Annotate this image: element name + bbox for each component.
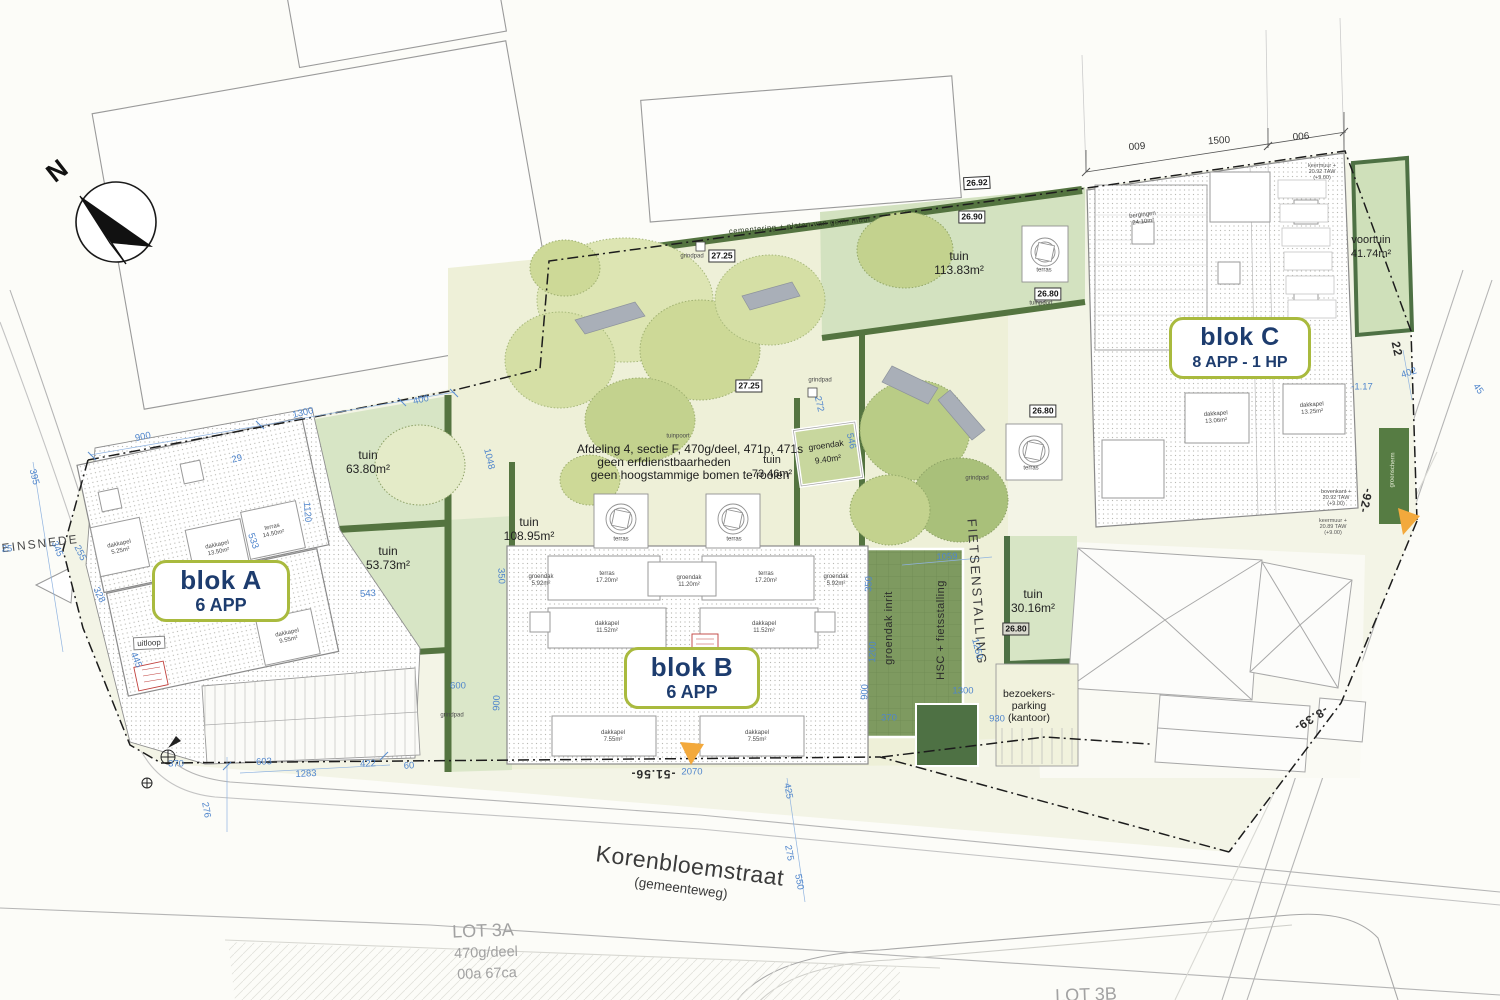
grindpad-label-3: grindpad: [965, 476, 988, 483]
dim-370-a: 370: [881, 713, 897, 724]
blok-c-subtitle: 8 APP - 1 HP: [1172, 352, 1308, 373]
blok-a-subtitle: 6 APP: [155, 595, 287, 616]
dim-543: 543: [360, 588, 377, 600]
lot-3b-title: LOT 3B: [1055, 983, 1117, 1000]
dim-29: 29: [230, 452, 243, 465]
terras-label-3: terras: [613, 537, 628, 544]
blokc-bergingen: bergingen24.10m²: [1129, 211, 1157, 228]
groenscherm-label: groenscherm: [1389, 452, 1396, 487]
dim-402: 402: [1400, 365, 1418, 380]
dim-900-c: 900: [859, 684, 871, 700]
blok-b-subtitle: 6 APP: [627, 682, 757, 703]
dim-1500: 1500: [1208, 135, 1231, 148]
chainage-92: -92-: [1357, 487, 1376, 515]
dim-425: 425: [781, 782, 795, 800]
site-plan-drawing: NKorenbloemstraat(gemeenteweg)TERREINSNE…: [0, 0, 1500, 1000]
taw-note-1: keermuur +20.92 TAW(+9.00): [1308, 163, 1336, 181]
uitloop-label: uitloop: [133, 636, 165, 651]
dim-550: 550: [792, 873, 806, 891]
blok-c-card: blok C 8 APP - 1 HP: [1169, 317, 1311, 379]
taw-note-3: keermuur +20.89 TAW(+9.00): [1319, 518, 1347, 536]
level-27-25-b: 27.25: [735, 380, 762, 393]
dim-422: 422: [360, 758, 376, 770]
dim-603: 603: [256, 756, 272, 768]
dim-1-17: -1.17: [1351, 382, 1373, 393]
grindpad-label-4: grindpad: [440, 713, 463, 720]
dim-350-b: 350: [863, 576, 875, 592]
blokb-groendak-1: groendak5.92m²: [528, 574, 553, 588]
blokb-groendak-3: groendak5.92m²: [823, 574, 848, 588]
dim-395: 395: [27, 468, 42, 486]
level-27-25-a: 27.25: [708, 250, 735, 263]
dim-255: 255: [72, 543, 89, 562]
bloka-terras: terras14.50m²: [261, 522, 285, 540]
blokb-dakkapel-2: dakkapel11.52m²: [752, 621, 776, 635]
dim-533: 533: [245, 532, 261, 551]
garden-label-voortuin: voortuin41.74m²: [1351, 233, 1391, 261]
level-26-80-b: 26.80: [1029, 405, 1056, 418]
hsc-fietsstalling-label: HSC + fietsstalling: [935, 580, 947, 680]
annotation-layer: NKorenbloemstraat(gemeenteweg)TERREINSNE…: [0, 0, 1500, 1000]
terras-label-1: terras: [1036, 268, 1051, 275]
grindpad-label-2: grindpad: [808, 378, 831, 385]
tuinpoort-label-2: tuinpoort: [666, 434, 689, 441]
dim-2070: 2070: [681, 767, 702, 778]
blokb-terras-2: terras17.20m²: [755, 571, 777, 585]
dim-60: 60: [403, 760, 414, 772]
dim-1300-b: 1300: [952, 686, 973, 697]
dim-009: 009: [1128, 141, 1145, 153]
dim-25: 25: [2, 544, 13, 555]
dim-272: 272: [812, 395, 826, 413]
taw-note-2: bovenkant +20.92 TAW(+9.00): [1321, 489, 1351, 507]
dim-600: 600: [450, 681, 466, 692]
lot-3a-line3: 00a 67ca: [457, 965, 517, 983]
dim-546: 546: [844, 432, 858, 450]
dim-1300-top: 1300: [291, 405, 314, 420]
garden-label-tuin-30: tuin30.16m²: [1011, 587, 1055, 615]
dim-006: 006: [1292, 131, 1309, 143]
dim-900-top: 900: [134, 430, 152, 444]
garden-label-tuin-113: tuin113.83m²: [934, 249, 984, 277]
site-note-line2: geen erfdienstbaarheden: [597, 455, 730, 469]
dim-930: 930: [989, 714, 1005, 725]
chainage-8-39: -8.39-: [1291, 703, 1330, 735]
blokb-dakkapel-1: dakkapel11.52m²: [595, 621, 619, 635]
chainage-22: 22: [1389, 340, 1406, 358]
level-26-80-a: 26.80: [1034, 288, 1061, 301]
bloka-dakkapel-3: dakkapel9.55m²: [275, 628, 301, 646]
boundary-wall-note: cementering + platen van gem. muur: [728, 214, 871, 235]
bloka-dakkapel-1: dakkapel5.25m²: [107, 539, 133, 557]
chainage-51-56: -51.56-: [630, 767, 675, 781]
blokb-dakkapel-3: dakkapel7.55m²: [601, 730, 625, 744]
level-26-80-c: 26.80: [1002, 623, 1029, 636]
blok-c-title: blok C: [1172, 323, 1308, 352]
north-letter: N: [40, 153, 74, 189]
tuinpoort-label-1: tuinpoort: [1029, 301, 1052, 308]
dim-1283: 1283: [295, 768, 317, 780]
dim-1200: 1200: [867, 641, 879, 663]
bezoekers-parking-label: bezoekers-parking(kantoor): [1003, 688, 1055, 724]
dim-1059: 1059: [936, 551, 958, 563]
dim-1048: 1048: [481, 447, 496, 470]
blok-b-title: blok B: [627, 653, 757, 682]
groendak-label: groendak9.40m²: [807, 436, 846, 469]
bloka-dakkapel-2: dakkapel13.50m²: [205, 540, 231, 558]
terras-label-4: terras: [726, 537, 741, 544]
dim-275: 275: [782, 844, 796, 862]
blokb-terras-1: terras17.20m²: [596, 571, 618, 585]
level-26-90: 26.90: [958, 211, 985, 224]
dim-350-a: 350: [495, 568, 507, 584]
blok-a-title: blok A: [155, 566, 287, 595]
level-26-92: 26.92: [963, 176, 991, 190]
dim-328: 328: [91, 585, 108, 604]
dim-276: 276: [199, 801, 213, 819]
garden-label-tuin-63: tuin63.80m²: [346, 448, 390, 476]
lot-3a-line2: 470g/deel: [454, 944, 518, 962]
lot-3a-title: LOT 3A: [452, 919, 514, 942]
garden-label-tuin-73: tuin73.46m²: [752, 453, 792, 481]
blokc-dakkapel-1: dakkapel13.06m²: [1204, 410, 1229, 425]
dim-1120: 1120: [301, 501, 313, 522]
blok-b-card: blok B 6 APP: [624, 647, 760, 709]
groendak-inrit-label: groendak inrit: [883, 591, 895, 665]
blok-a-card: blok A 6 APP: [152, 560, 290, 622]
blokb-dakkapel-4: dakkapel7.55m²: [745, 730, 769, 744]
terras-label-2: terras: [1023, 466, 1038, 473]
dim-370-b: 370: [168, 759, 184, 770]
dim-45: 45: [1470, 382, 1485, 397]
blokb-groendak-2: groendak11.20m²: [676, 575, 701, 589]
dim-400-top: 400: [412, 393, 430, 407]
blokc-dakkapel-2: dakkapel13.25m²: [1300, 401, 1325, 416]
garden-label-tuin-108: tuin108.95m²: [504, 515, 555, 543]
dim-900-b: 900: [491, 695, 503, 711]
garden-label-tuin-53: tuin53.73m²: [366, 544, 410, 572]
dim-445: 445: [128, 651, 144, 670]
grindpad-label-1: grindpad: [680, 254, 703, 261]
